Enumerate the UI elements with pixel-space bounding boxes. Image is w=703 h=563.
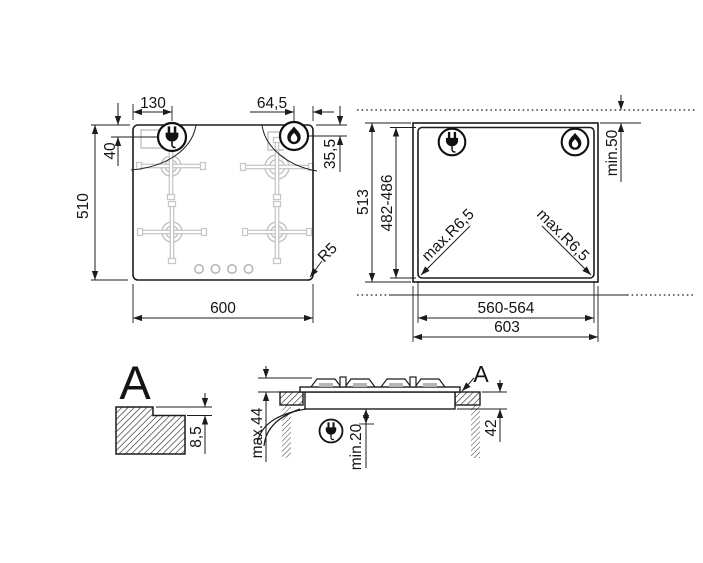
dim-label-510: 510 xyxy=(75,193,92,219)
dim-cutout-height: 482-486 xyxy=(379,128,416,279)
dim-rear-clearance: min.50 xyxy=(600,95,641,182)
dim-label-130: 130 xyxy=(140,95,166,112)
power-plug-icon xyxy=(320,420,343,443)
burner-cap xyxy=(423,383,437,387)
dim-label-482-486: 482-486 xyxy=(379,175,396,232)
dim-cutout-radius-right: max.R6,5 xyxy=(533,206,592,275)
dim-label-maxr65-right: max.R6,5 xyxy=(533,206,592,265)
detail-a-label: A xyxy=(119,356,151,409)
dim-hob-width: 600 xyxy=(133,284,313,323)
dim-plug-offset-left: 130 xyxy=(133,95,172,121)
dim-label-40: 40 xyxy=(102,142,119,160)
dim-flame-offset-right: 64,5 xyxy=(250,95,334,121)
power-plug-icon xyxy=(158,123,186,151)
section-view: max.44 min.20 42 A xyxy=(249,361,507,470)
burner-cap xyxy=(319,383,333,387)
edge-profile-section xyxy=(116,407,185,454)
worktop-right xyxy=(455,392,480,405)
dim-label-603: 603 xyxy=(494,319,520,336)
hob-plate-section xyxy=(300,387,460,392)
dim-bottom-clearance: min.20 xyxy=(348,409,374,470)
dim-label-560-564: 560-564 xyxy=(478,300,535,317)
control-knobs xyxy=(195,265,253,273)
dim-recess-depth: 42 xyxy=(457,380,507,442)
dim-label-8-5: 8,5 xyxy=(188,426,205,448)
burner-bottom-right xyxy=(243,202,312,264)
gas-flame-icon xyxy=(280,122,308,150)
dim-overall-depth: max.44 xyxy=(249,366,312,462)
dim-flame-offset-top: 35,5 xyxy=(309,106,347,172)
installation-diagram: 130 64,5 40 35,5 xyxy=(0,0,703,563)
gas-flame-icon xyxy=(562,129,589,156)
dim-label-min20: min.20 xyxy=(348,423,365,470)
hob-body-section xyxy=(305,392,455,409)
dim-label-max44: max.44 xyxy=(249,407,266,458)
burner-cap xyxy=(389,383,403,387)
dim-label-r5: R5 xyxy=(315,240,341,266)
burner-cap xyxy=(353,383,367,387)
section-a-label: A xyxy=(473,361,489,387)
power-plug-icon xyxy=(439,129,466,156)
hob-top-view: 130 64,5 40 35,5 xyxy=(75,95,347,323)
dim-corner-radius: R5 xyxy=(310,240,341,277)
dim-cutout-width: 560-564 xyxy=(418,281,594,323)
dim-label-maxr65-left: max.R6,5 xyxy=(419,206,478,265)
technical-drawing-canvas: 130 64,5 40 35,5 xyxy=(0,0,703,563)
worktop-left xyxy=(280,392,303,405)
dim-label-min50: min.50 xyxy=(604,129,621,176)
detail-a-view: A 8,5 xyxy=(116,356,212,454)
cabinet-panel-right xyxy=(471,405,480,458)
dim-label-64-5: 64,5 xyxy=(257,95,287,112)
worktop-cutout-view: min.50 513 482-486 max.R6,5 max.R6,5 xyxy=(355,95,696,342)
dim-cutout-radius-left: max.R6,5 xyxy=(419,206,478,275)
burner-grid xyxy=(137,138,314,264)
dim-label-513: 513 xyxy=(355,189,372,215)
dim-label-35-5: 35,5 xyxy=(322,139,339,169)
dim-label-600: 600 xyxy=(210,300,236,317)
section-a-callout: A xyxy=(462,361,489,391)
burner-bottom-left xyxy=(138,202,207,264)
dim-label-42: 42 xyxy=(483,419,500,436)
